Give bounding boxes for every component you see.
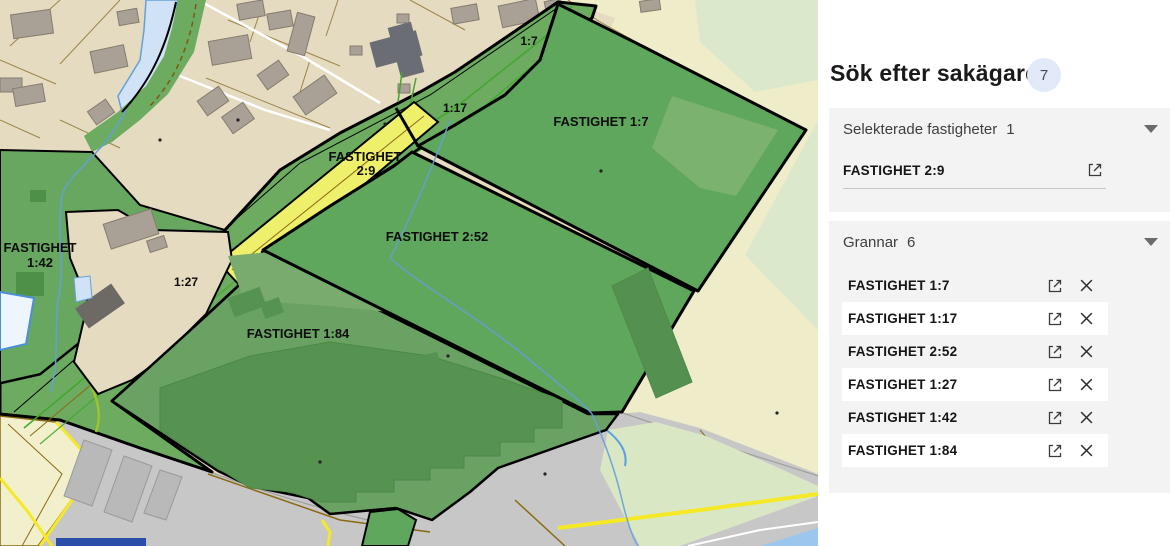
neighbor-row: FASTIGHET 2:52 <box>842 335 1108 368</box>
close-icon <box>1079 344 1094 359</box>
selected-property-row: FASTIGHET 2:9 <box>843 152 1106 189</box>
map-label-fastighet-2-52: FASTIGHET 2:52 <box>386 229 489 244</box>
open-property-button[interactable] <box>1045 309 1064 328</box>
neighbor-row: FASTIGHET 1:42 <box>842 401 1108 434</box>
neighbors-list: FASTIGHET 1:7 FASTIGHET 1:17 <box>842 269 1108 467</box>
property-name: FASTIGHET 2:52 <box>848 344 1045 359</box>
neighbor-row: FASTIGHET 1:17 <box>842 302 1108 335</box>
neighbor-row: FASTIGHET 1:7 <box>842 269 1108 302</box>
results-count-badge: 7 <box>1027 58 1061 92</box>
selected-properties-count: 1 <box>1006 121 1014 138</box>
open-in-new-icon <box>1046 442 1064 460</box>
map-label-strip-1-7: 1:7 <box>520 34 538 48</box>
property-name: FASTIGHET 1:17 <box>848 311 1045 326</box>
selected-properties-header[interactable]: Selekterade fastigheter 1 <box>843 119 1158 139</box>
remove-property-button[interactable] <box>1077 375 1096 394</box>
open-in-new-icon <box>1046 343 1064 361</box>
map-label-fastighet-1-42-line1: FASTIGHET <box>4 240 77 255</box>
map-canvas[interactable]: FASTIGHET 1:7 FASTIGHET 2:52 FASTIGHET 2… <box>0 0 818 546</box>
remove-property-button[interactable] <box>1077 441 1096 460</box>
open-in-new-icon <box>1046 409 1064 427</box>
property-name: FASTIGHET 1:42 <box>848 410 1045 425</box>
remove-property-button[interactable] <box>1077 276 1096 295</box>
map-label-fastighet-2-9-line1: FASTIGHET <box>329 149 402 164</box>
map-label-strip-1-17: 1:17 <box>443 101 467 115</box>
map-viewport[interactable]: FASTIGHET 1:7 FASTIGHET 2:52 FASTIGHET 2… <box>0 0 818 546</box>
close-icon <box>1079 278 1094 293</box>
chevron-down-icon[interactable] <box>1144 238 1158 246</box>
map-label-fastighet-1-42-line2: 1:42 <box>27 255 53 270</box>
open-in-new-icon <box>1046 277 1064 295</box>
neighbors-header[interactable]: Grannar 6 <box>843 232 1158 252</box>
property-name: FASTIGHET 1:27 <box>848 377 1045 392</box>
neighbor-row: FASTIGHET 1:84 <box>842 434 1108 467</box>
dark-green-patch <box>30 190 46 202</box>
neighbor-row: FASTIGHET 1:27 <box>842 368 1108 401</box>
dark-green-patch <box>16 272 44 296</box>
property-name: FASTIGHET 2:9 <box>843 163 945 178</box>
open-in-new-icon <box>1046 376 1064 394</box>
open-property-button[interactable] <box>1045 441 1064 460</box>
remove-property-button[interactable] <box>1077 342 1096 361</box>
chevron-down-icon[interactable] <box>1144 125 1158 133</box>
search-results-panel: Sök efter sakägare 7 Selekterade fastigh… <box>818 0 1176 546</box>
pond <box>74 276 92 302</box>
selected-properties-section: Selekterade fastigheter 1 FASTIGHET 2:9 <box>829 108 1170 212</box>
open-in-new-icon <box>1086 161 1104 179</box>
open-property-button[interactable] <box>1045 375 1064 394</box>
close-icon <box>1079 443 1094 458</box>
neighbors-label: Grannar <box>843 234 898 251</box>
open-property-button[interactable] <box>1045 276 1064 295</box>
property-name: FASTIGHET 1:84 <box>848 443 1045 458</box>
water-channel-bar <box>56 538 146 546</box>
remove-property-button[interactable] <box>1077 408 1096 427</box>
open-property-button[interactable] <box>1045 342 1064 361</box>
map-label-fastighet-2-9-line2: 2:9 <box>357 163 376 178</box>
close-icon <box>1079 377 1094 392</box>
neighbors-count: 6 <box>907 234 915 251</box>
app-window: FASTIGHET 1:7 FASTIGHET 2:52 FASTIGHET 2… <box>0 0 1176 546</box>
selected-properties-label: Selekterade fastigheter <box>843 121 997 138</box>
neighbors-section: Grannar 6 FASTIGHET 1:7 FASTIGHET 1:17 <box>829 221 1170 493</box>
map-label-fastighet-1-7: FASTIGHET 1:7 <box>553 114 648 129</box>
parcel-tip <box>362 509 416 546</box>
map-label-fastighet-1-84: FASTIGHET 1:84 <box>247 326 350 341</box>
open-in-new-icon <box>1046 310 1064 328</box>
page-title: Sök efter sakägare <box>830 60 1038 87</box>
open-property-button[interactable] <box>1045 408 1064 427</box>
close-icon <box>1079 311 1094 326</box>
map-label-strip-1-27: 1:27 <box>174 275 198 289</box>
open-property-button[interactable] <box>1085 161 1104 180</box>
property-name: FASTIGHET 1:7 <box>848 278 1045 293</box>
remove-property-button[interactable] <box>1077 309 1096 328</box>
close-icon <box>1079 410 1094 425</box>
